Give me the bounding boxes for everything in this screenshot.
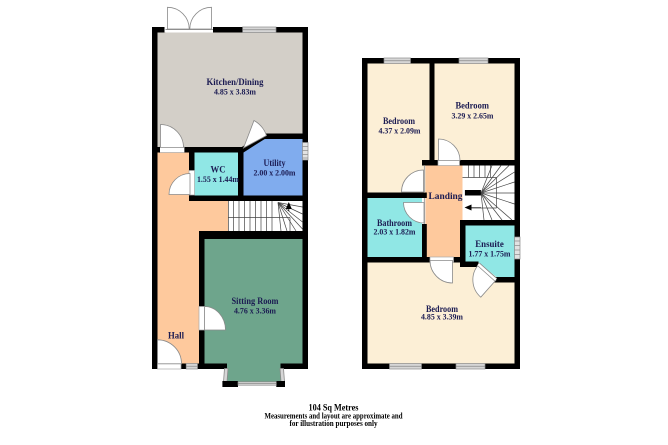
svg-text:4.85 x 3.39m: 4.85 x 3.39m (421, 311, 464, 321)
svg-text:Hall: Hall (168, 332, 184, 342)
svg-text:Landing: Landing (429, 192, 463, 202)
svg-text:2.03 x 1.82m: 2.03 x 1.82m (374, 227, 417, 237)
svg-text:4.85 x 3.83m: 4.85 x 3.83m (214, 87, 257, 97)
svg-text:for illustration purposes only: for illustration purposes only (290, 419, 378, 428)
svg-text:2.00 x 2.00m: 2.00 x 2.00m (254, 168, 297, 178)
svg-text:4.37 x 2.09m: 4.37 x 2.09m (379, 125, 422, 135)
svg-text:1.55 x 1.44m: 1.55 x 1.44m (197, 174, 240, 184)
svg-text:4.76 x 3.36m: 4.76 x 3.36m (234, 306, 277, 316)
svg-text:3.29 x 2.65m: 3.29 x 2.65m (452, 110, 495, 120)
svg-text:1.77 x 1.75m: 1.77 x 1.75m (469, 249, 512, 259)
